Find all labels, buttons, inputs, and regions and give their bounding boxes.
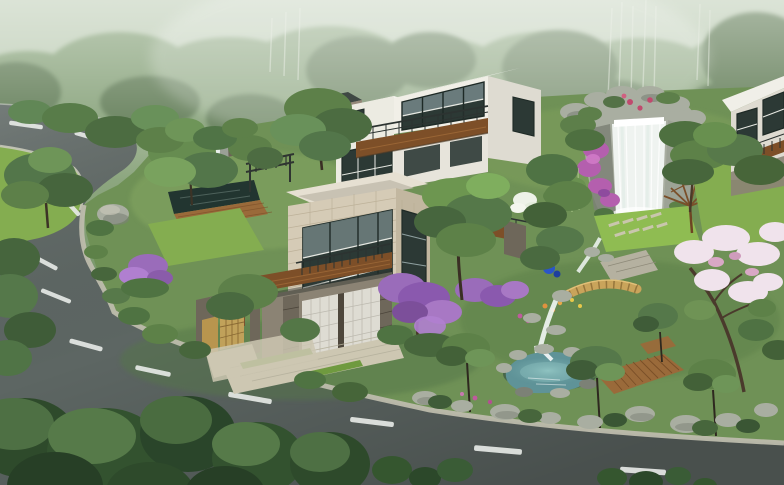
upper-side-window — [513, 97, 534, 136]
scene-canvas — [0, 0, 784, 485]
villa-rendering — [0, 0, 784, 485]
blue-ball-small — [554, 271, 561, 278]
